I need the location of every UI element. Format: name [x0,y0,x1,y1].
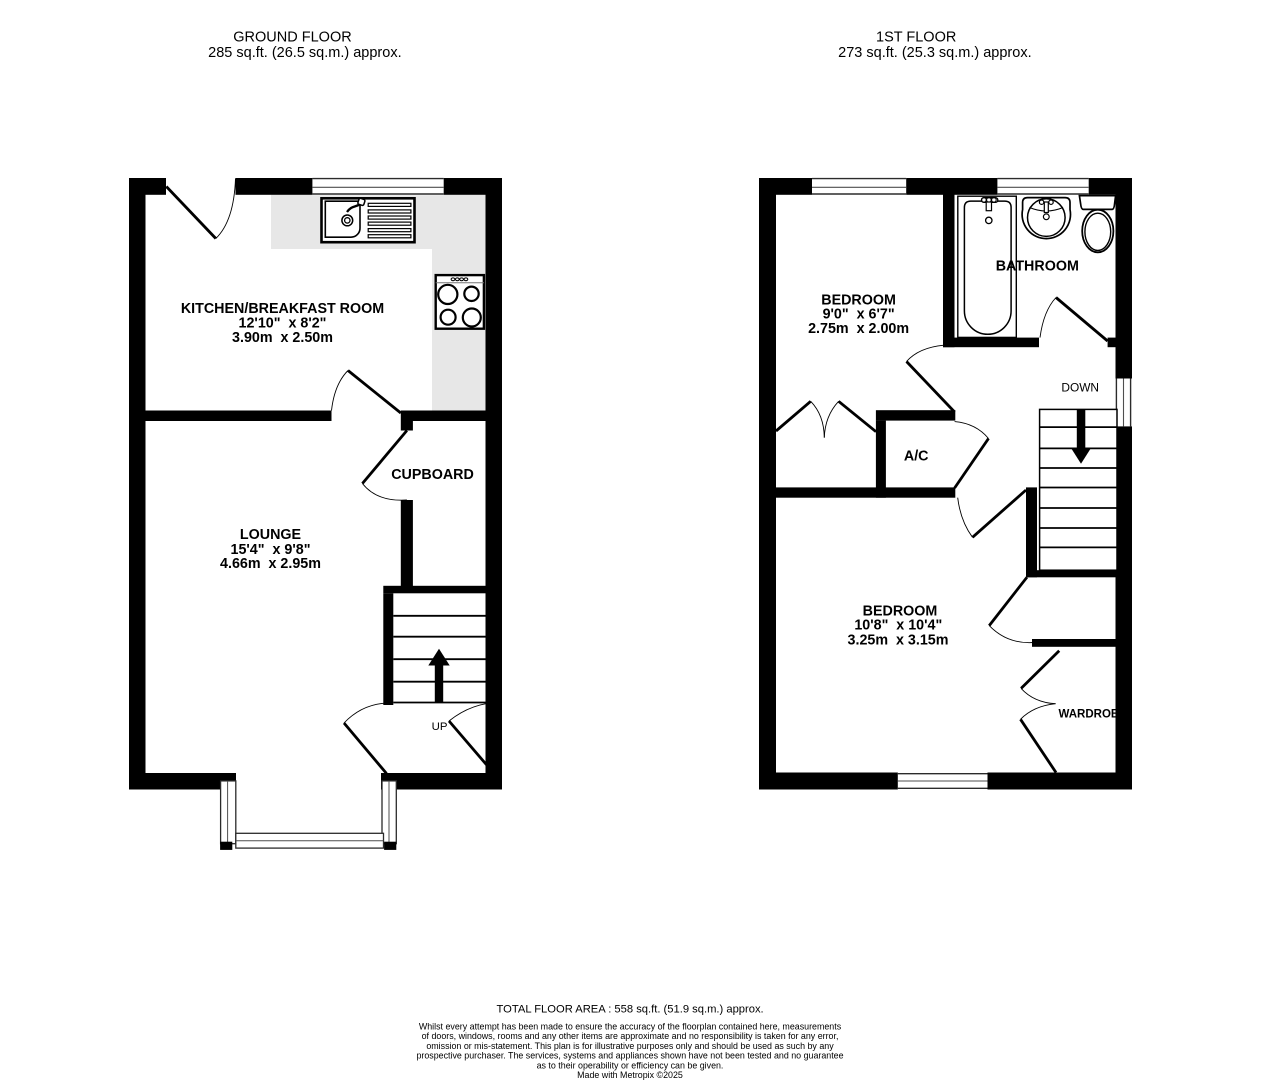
svg-text:DOWN: DOWN [1061,380,1099,394]
svg-text:TOTAL FLOOR AREA : 558 sq.ft.: TOTAL FLOOR AREA : 558 sq.ft. (51.9 sq.m… [497,1003,764,1015]
svg-text:omission or mis-statement. Thi: omission or mis-statement. This plan is … [426,1041,834,1051]
svg-text:A/C: A/C [904,449,929,465]
svg-text:3.25m x 3.15m: 3.25m x 3.15m [848,633,949,649]
svg-text:Made with Metropix ©2025: Made with Metropix ©2025 [577,1070,683,1080]
svg-text:of doors, windows, rooms and a: of doors, windows, rooms and any other i… [422,1031,839,1041]
svg-text:2.75m x 2.00m: 2.75m x 2.00m [808,321,909,337]
svg-text:Whilst every attempt has been: Whilst every attempt has been made to en… [419,1022,842,1032]
svg-text:4.66m x 2.95m: 4.66m x 2.95m [220,556,321,572]
svg-text:as to their operability or eff: as to their operability or efficiency ca… [537,1060,724,1070]
svg-text:BATHROOM: BATHROOM [996,259,1079,275]
svg-text:UP: UP [432,721,448,733]
svg-text:285 sq.ft. (26.5 sq.m.) approx: 285 sq.ft. (26.5 sq.m.) approx. [208,45,401,61]
svg-text:10'8" x 10'4": 10'8" x 10'4" [854,617,942,633]
svg-text:3.90m x 2.50m: 3.90m x 2.50m [232,330,333,346]
svg-text:GROUND FLOOR: GROUND FLOOR [233,30,351,46]
svg-text:1ST FLOOR: 1ST FLOOR [876,30,956,46]
svg-text:prospective purchaser. The ser: prospective purchaser. The services, sys… [416,1051,843,1061]
svg-text:273 sq.ft. (25.3 sq.m.) approx: 273 sq.ft. (25.3 sq.m.) approx. [838,45,1031,61]
svg-text:LOUNGE: LOUNGE [240,527,301,543]
svg-text:CUPBOARD: CUPBOARD [391,467,474,483]
